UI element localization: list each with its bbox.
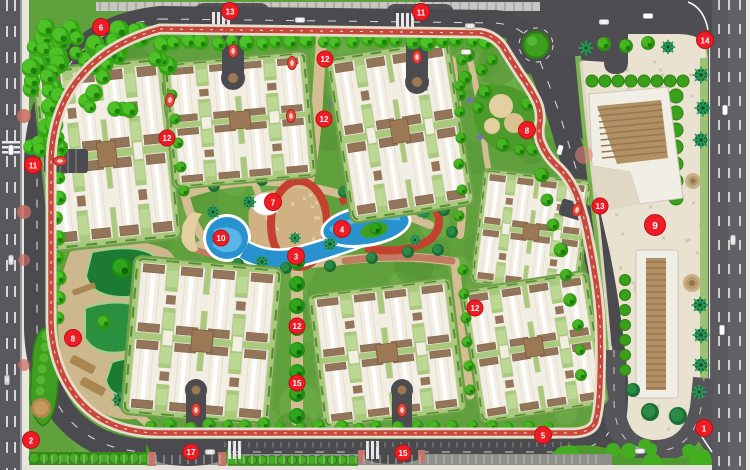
- svg-text:✕: ✕: [314, 201, 319, 207]
- svg-text:✕: ✕: [652, 60, 657, 66]
- svg-text:15: 15: [293, 379, 302, 388]
- svg-text:✕: ✕: [618, 266, 623, 272]
- svg-text:✕: ✕: [316, 216, 321, 222]
- svg-text:15: 15: [399, 449, 408, 458]
- svg-text:✕: ✕: [658, 68, 663, 74]
- svg-text:✕: ✕: [691, 201, 696, 207]
- svg-text:11: 11: [417, 8, 426, 17]
- svg-text:12: 12: [163, 134, 172, 143]
- svg-text:✕: ✕: [666, 427, 671, 433]
- svg-text:✕: ✕: [308, 193, 313, 199]
- svg-text:17: 17: [187, 448, 196, 457]
- svg-text:12: 12: [471, 304, 480, 313]
- svg-text:✕: ✕: [275, 227, 280, 233]
- svg-text:✕: ✕: [689, 94, 694, 100]
- svg-text:14: 14: [701, 36, 710, 45]
- svg-text:7: 7: [271, 198, 276, 207]
- svg-text:✕: ✕: [648, 205, 653, 211]
- svg-text:8: 8: [71, 334, 76, 343]
- svg-text:13: 13: [596, 202, 605, 211]
- svg-text:3: 3: [294, 252, 299, 261]
- svg-text:12: 12: [293, 322, 302, 331]
- svg-text:9: 9: [652, 221, 658, 232]
- svg-text:5: 5: [541, 431, 546, 440]
- svg-text:6: 6: [99, 23, 104, 32]
- svg-text:✕: ✕: [290, 202, 295, 208]
- svg-text:✕: ✕: [687, 238, 692, 244]
- svg-text:1: 1: [702, 424, 707, 433]
- svg-text:10: 10: [217, 234, 226, 243]
- svg-text:✕: ✕: [661, 236, 666, 242]
- svg-text:8: 8: [525, 126, 530, 135]
- svg-text:✕: ✕: [620, 232, 625, 238]
- svg-text:2: 2: [29, 436, 34, 445]
- svg-text:12: 12: [321, 55, 330, 64]
- svg-text:11: 11: [29, 161, 38, 170]
- svg-text:✕: ✕: [302, 197, 307, 203]
- svg-text:13: 13: [226, 7, 235, 16]
- svg-text:12: 12: [320, 115, 329, 124]
- svg-text:4: 4: [340, 225, 345, 234]
- svg-text:✕: ✕: [614, 213, 619, 219]
